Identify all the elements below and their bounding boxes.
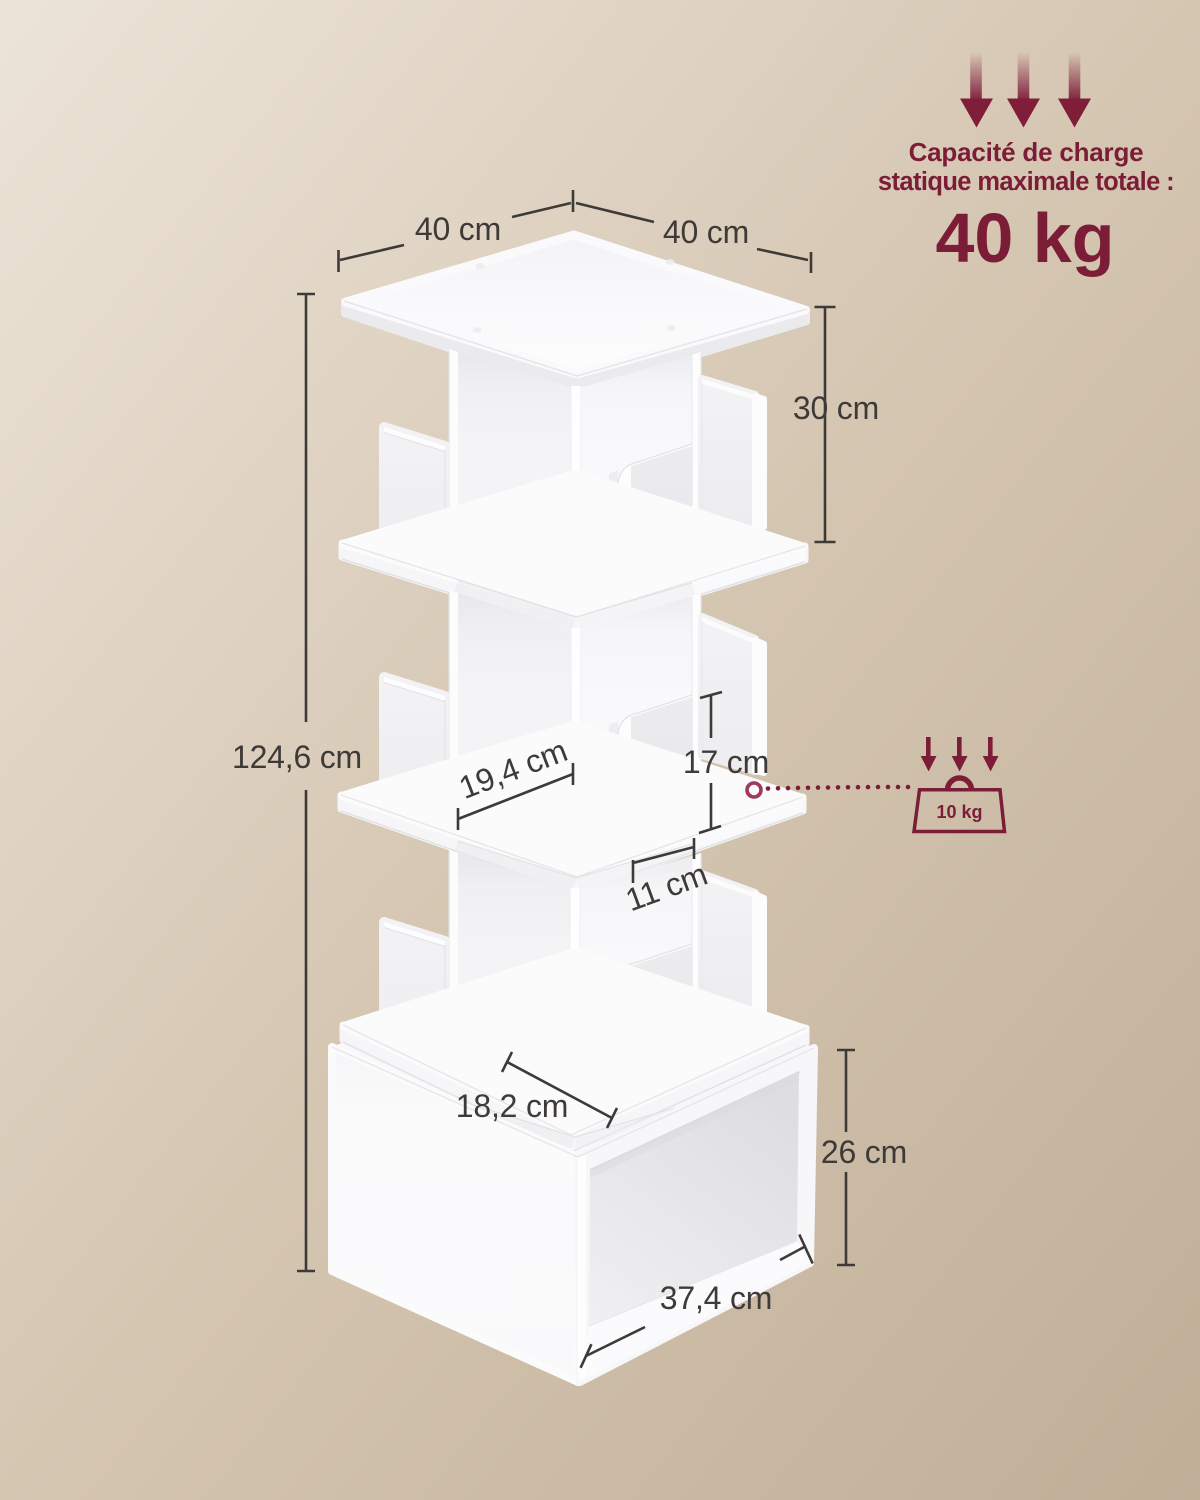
svg-text:40 kg: 40 kg: [936, 199, 1115, 277]
svg-text:40 cm: 40 cm: [663, 214, 749, 250]
svg-text:26 cm: 26 cm: [821, 1134, 907, 1170]
svg-text:124,6 cm: 124,6 cm: [232, 739, 362, 775]
svg-text:18,2 cm: 18,2 cm: [456, 1088, 568, 1124]
svg-text:Capacité de charge: Capacité de charge: [909, 137, 1144, 167]
svg-text:40 cm: 40 cm: [415, 211, 501, 247]
svg-text:37,4 cm: 37,4 cm: [660, 1280, 772, 1316]
svg-text:10 kg: 10 kg: [936, 802, 982, 822]
svg-text:17 cm: 17 cm: [683, 744, 769, 780]
svg-text:30 cm: 30 cm: [793, 390, 879, 426]
svg-text:statique maximale totale :: statique maximale totale :: [878, 168, 1174, 196]
